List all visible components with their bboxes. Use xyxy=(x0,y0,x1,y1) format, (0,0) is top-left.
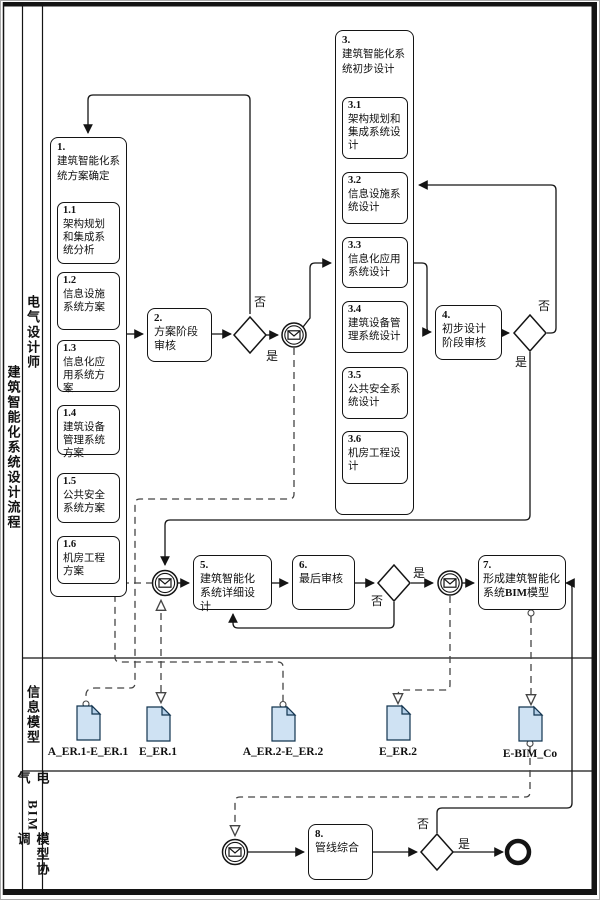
lane-3-label-pre: 电气 xyxy=(14,771,52,800)
activity-7: 7. 形成建筑智能化系统BIM模型 xyxy=(478,555,566,610)
end-event xyxy=(507,841,529,863)
gateway-1-plan-review xyxy=(234,317,266,353)
subactivity-1-5-num: 1.5 xyxy=(63,476,114,489)
activity-8-label: 管线综合 xyxy=(315,842,359,854)
subactivity-1-5-label: 公共安全系统方案 xyxy=(63,490,105,514)
flow-a3-a4 xyxy=(414,263,431,332)
flow-gateway4-no-a7 xyxy=(437,583,572,833)
subactivity-3-6: 3.6 机房工程设计 xyxy=(342,431,408,484)
subactivity-3-6-num: 3.6 xyxy=(348,434,402,447)
subactivity-3-4: 3.4 建筑设备管理系统设计 xyxy=(342,301,408,353)
gateway-4-pipeline-review xyxy=(421,834,453,870)
subactivity-3-2: 3.2 信息设施系统设计 xyxy=(342,172,408,224)
activity-7-label-bim: BIM xyxy=(505,587,527,599)
activity-4-label: 初步设计阶段审核 xyxy=(442,323,486,349)
document-label-e-er1: E_ER.1 xyxy=(118,747,198,759)
flow-msg1-a3 xyxy=(303,263,331,327)
activity-3-label: 建筑智能化系统初步设计 xyxy=(342,49,405,74)
gateway-2-no-label: 否 xyxy=(538,300,550,312)
subactivity-3-5: 3.5 公共安全系统设计 xyxy=(342,367,408,419)
gateway-4-no-label: 否 xyxy=(417,818,429,830)
subactivity-1-6-num: 1.6 xyxy=(63,539,114,552)
activity-2: 2. 方案阶段审核 xyxy=(147,308,212,362)
subactivity-1-4-num: 1.4 xyxy=(63,408,114,421)
message-event-3 xyxy=(438,571,462,595)
subactivity-1-3-label: 信息化应用系统方案 xyxy=(63,357,105,395)
subactivity-1-1: 1.1 架构规划和集成系统分析 xyxy=(57,202,120,264)
pool-title: 建筑智能化系统设计流程 xyxy=(4,6,22,889)
activity-6-num: 6. xyxy=(299,559,348,572)
envelope-icon xyxy=(288,331,300,339)
activity-8: 8. 管线综合 xyxy=(308,824,373,880)
data-objects xyxy=(77,706,542,741)
subactivity-3-4-label: 建筑设备管理系统设计 xyxy=(348,318,401,342)
subactivity-3-3-num: 3.3 xyxy=(348,240,402,253)
gateway-3-no-label: 否 xyxy=(371,595,383,607)
gateway-2-yes-label: 是 xyxy=(515,356,527,368)
lane-3-label-post: 模型协调 xyxy=(14,832,52,889)
gateway-3-yes-label: 是 xyxy=(413,567,425,579)
subactivity-3-4-num: 3.4 xyxy=(348,304,402,317)
activity-1-num: 1. xyxy=(57,141,120,154)
document-label-e-bim-co: E-BIM_Co xyxy=(490,749,570,761)
subactivity-1-4: 1.4 建筑设备管理系统方案 xyxy=(57,405,120,455)
subactivity-1-2: 1.2 信息设施系统方案 xyxy=(57,272,120,330)
gateway-4-yes-label: 是 xyxy=(458,838,470,850)
gateway-1-yes-label: 是 xyxy=(266,350,278,362)
message-event-4 xyxy=(223,840,248,865)
document-e-bim-co xyxy=(519,707,542,741)
lane-1-label: 电气设计师 xyxy=(23,6,42,658)
document-label-a-er2-e-er2: A_ER.2-E_ER.2 xyxy=(233,747,333,759)
subactivity-1-2-num: 1.2 xyxy=(63,275,114,288)
message-event-2 xyxy=(153,571,178,596)
bpmn-diagram: 建筑智能化系统设计流程 电气设计师 信息模型 电气BIM模型协调 1. 建筑智能… xyxy=(0,0,600,900)
subactivity-3-5-num: 3.5 xyxy=(348,370,402,383)
subactivity-3-3: 3.3 信息化应用系统设计 xyxy=(342,237,408,288)
subactivity-3-2-label: 信息设施系统设计 xyxy=(348,189,401,213)
activity-6-label: 最后审核 xyxy=(299,573,343,585)
subactivity-1-6: 1.6 机房工程方案 xyxy=(57,536,120,584)
lane-3-label: 电气BIM模型协调 xyxy=(23,771,42,889)
document-e-er1 xyxy=(147,707,170,741)
activity-7-num: 7. xyxy=(483,559,561,572)
message-event-1 xyxy=(282,323,306,347)
gateway-1-no-label: 否 xyxy=(254,296,266,308)
envelope-icon xyxy=(229,848,241,856)
subactivity-1-1-label: 架构规划和集成系统分析 xyxy=(63,219,105,257)
activity-6: 6. 最后审核 xyxy=(292,555,355,610)
subactivity-3-1-num: 3.1 xyxy=(348,100,402,113)
activity-5: 5. 建筑智能化系统详细设计 xyxy=(193,555,272,610)
document-a-er2-e-er2 xyxy=(272,707,295,741)
subactivity-1-3-num: 1.3 xyxy=(63,343,114,356)
msgflow-msg3-docE2 xyxy=(398,596,450,703)
activity-3-num: 3. xyxy=(342,34,407,47)
subactivity-3-6-label: 机房工程设计 xyxy=(348,448,401,472)
gateway-2-preliminary-review xyxy=(514,315,546,351)
activity-4-num: 4. xyxy=(442,309,495,322)
document-e-er2 xyxy=(387,706,410,740)
subactivity-1-2-label: 信息设施系统方案 xyxy=(63,289,105,313)
envelope-icon xyxy=(444,579,456,587)
lane-3-label-bim: BIM xyxy=(25,800,41,832)
activity-5-num: 5. xyxy=(200,559,265,572)
subactivity-3-2-num: 3.2 xyxy=(348,175,402,188)
msgflow-docBIM-msg4 xyxy=(235,746,530,835)
activity-8-num: 8. xyxy=(315,828,366,841)
envelope-icon xyxy=(159,579,171,587)
activity-7-label-post: 模型 xyxy=(527,587,549,599)
subactivity-3-3-label: 信息化应用系统设计 xyxy=(348,254,401,278)
subactivity-1-4-label: 建筑设备管理系统方案 xyxy=(63,422,105,460)
document-label-e-er2: E_ER.2 xyxy=(358,747,438,759)
subactivity-1-6-label: 机房工程方案 xyxy=(63,553,105,577)
activity-5-label: 建筑智能化系统详细设计 xyxy=(200,573,255,613)
document-a-er1-e-er1 xyxy=(77,706,100,740)
subactivity-3-1-label: 架构规划和集成系统设计 xyxy=(348,114,401,152)
subactivity-3-1: 3.1 架构规划和集成系统设计 xyxy=(342,97,408,159)
activity-2-label: 方案阶段审核 xyxy=(154,326,198,352)
subactivity-1-1-num: 1.1 xyxy=(63,205,114,218)
activity-4: 4. 初步设计阶段审核 xyxy=(435,305,502,360)
activity-2-num: 2. xyxy=(154,312,205,325)
subactivity-1-5: 1.5 公共安全系统方案 xyxy=(57,473,120,523)
subactivity-3-5-label: 公共安全系统设计 xyxy=(348,384,401,408)
subactivity-1-3: 1.3 信息化应用系统方案 xyxy=(57,340,120,392)
activity-1-label: 建筑智能化系统方案确定 xyxy=(57,156,120,181)
